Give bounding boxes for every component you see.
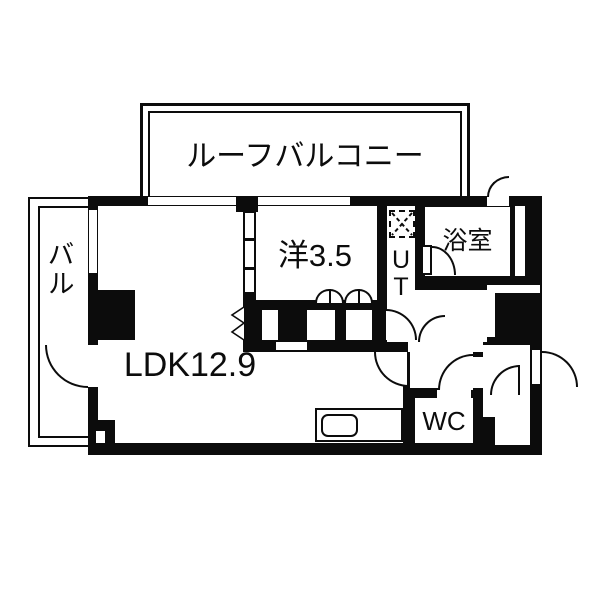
wc-door-gap xyxy=(437,390,471,398)
bath-label: 浴室 xyxy=(425,219,510,259)
folding-door-icon xyxy=(230,306,245,342)
top-service-door-arc xyxy=(487,176,509,197)
pillar-block xyxy=(98,290,135,340)
entrance-closet-outline-left xyxy=(487,285,495,337)
kitchen-sink xyxy=(321,414,358,437)
hall-door-arc xyxy=(374,352,409,387)
bottom-left-step-notch xyxy=(96,431,105,443)
partition-panel-2 xyxy=(243,239,256,269)
utility-letter-t: T xyxy=(393,274,408,302)
entrance-step-notch xyxy=(483,417,495,445)
balcony-label: バル xyxy=(42,224,76,314)
roof-balcony-label: ルーフバルコニー xyxy=(150,118,460,188)
window-top-2 xyxy=(258,197,350,205)
closet-bottom-notch xyxy=(276,342,307,350)
closet-door-leaf-tick-2 xyxy=(358,289,360,303)
genkan-door-leaf xyxy=(518,365,520,395)
bath-side-shaft xyxy=(515,206,525,276)
closet-compartment-1 xyxy=(262,310,278,340)
partition-panel-3 xyxy=(243,268,256,294)
entrance-door-leaf xyxy=(530,348,542,386)
closet-compartment-3 xyxy=(346,310,372,340)
closet-door-leaf-tick-1 xyxy=(329,289,331,303)
utility-letter-u: U xyxy=(392,247,410,275)
entrance-door-arc xyxy=(542,351,578,387)
window-left xyxy=(89,210,97,273)
corridor-band-gap xyxy=(408,342,483,352)
hall-door-leaf xyxy=(407,352,410,388)
closet-compartment-2 xyxy=(307,310,335,340)
utility-label: U T xyxy=(387,243,415,305)
wc-label: WC xyxy=(415,402,473,440)
partition-panel-1 xyxy=(243,211,256,240)
top-service-door-gap xyxy=(487,197,509,206)
hall-genkan-opening xyxy=(473,357,483,388)
ldk-label: LDK12.9 xyxy=(108,346,272,384)
western-room-label: 洋3.5 xyxy=(263,231,367,273)
window-top-1 xyxy=(148,197,236,205)
floor-plan: ルーフバルコニー バル xyxy=(0,0,600,600)
balcony-door-gap xyxy=(88,345,98,387)
washer-space-icon xyxy=(389,210,415,238)
